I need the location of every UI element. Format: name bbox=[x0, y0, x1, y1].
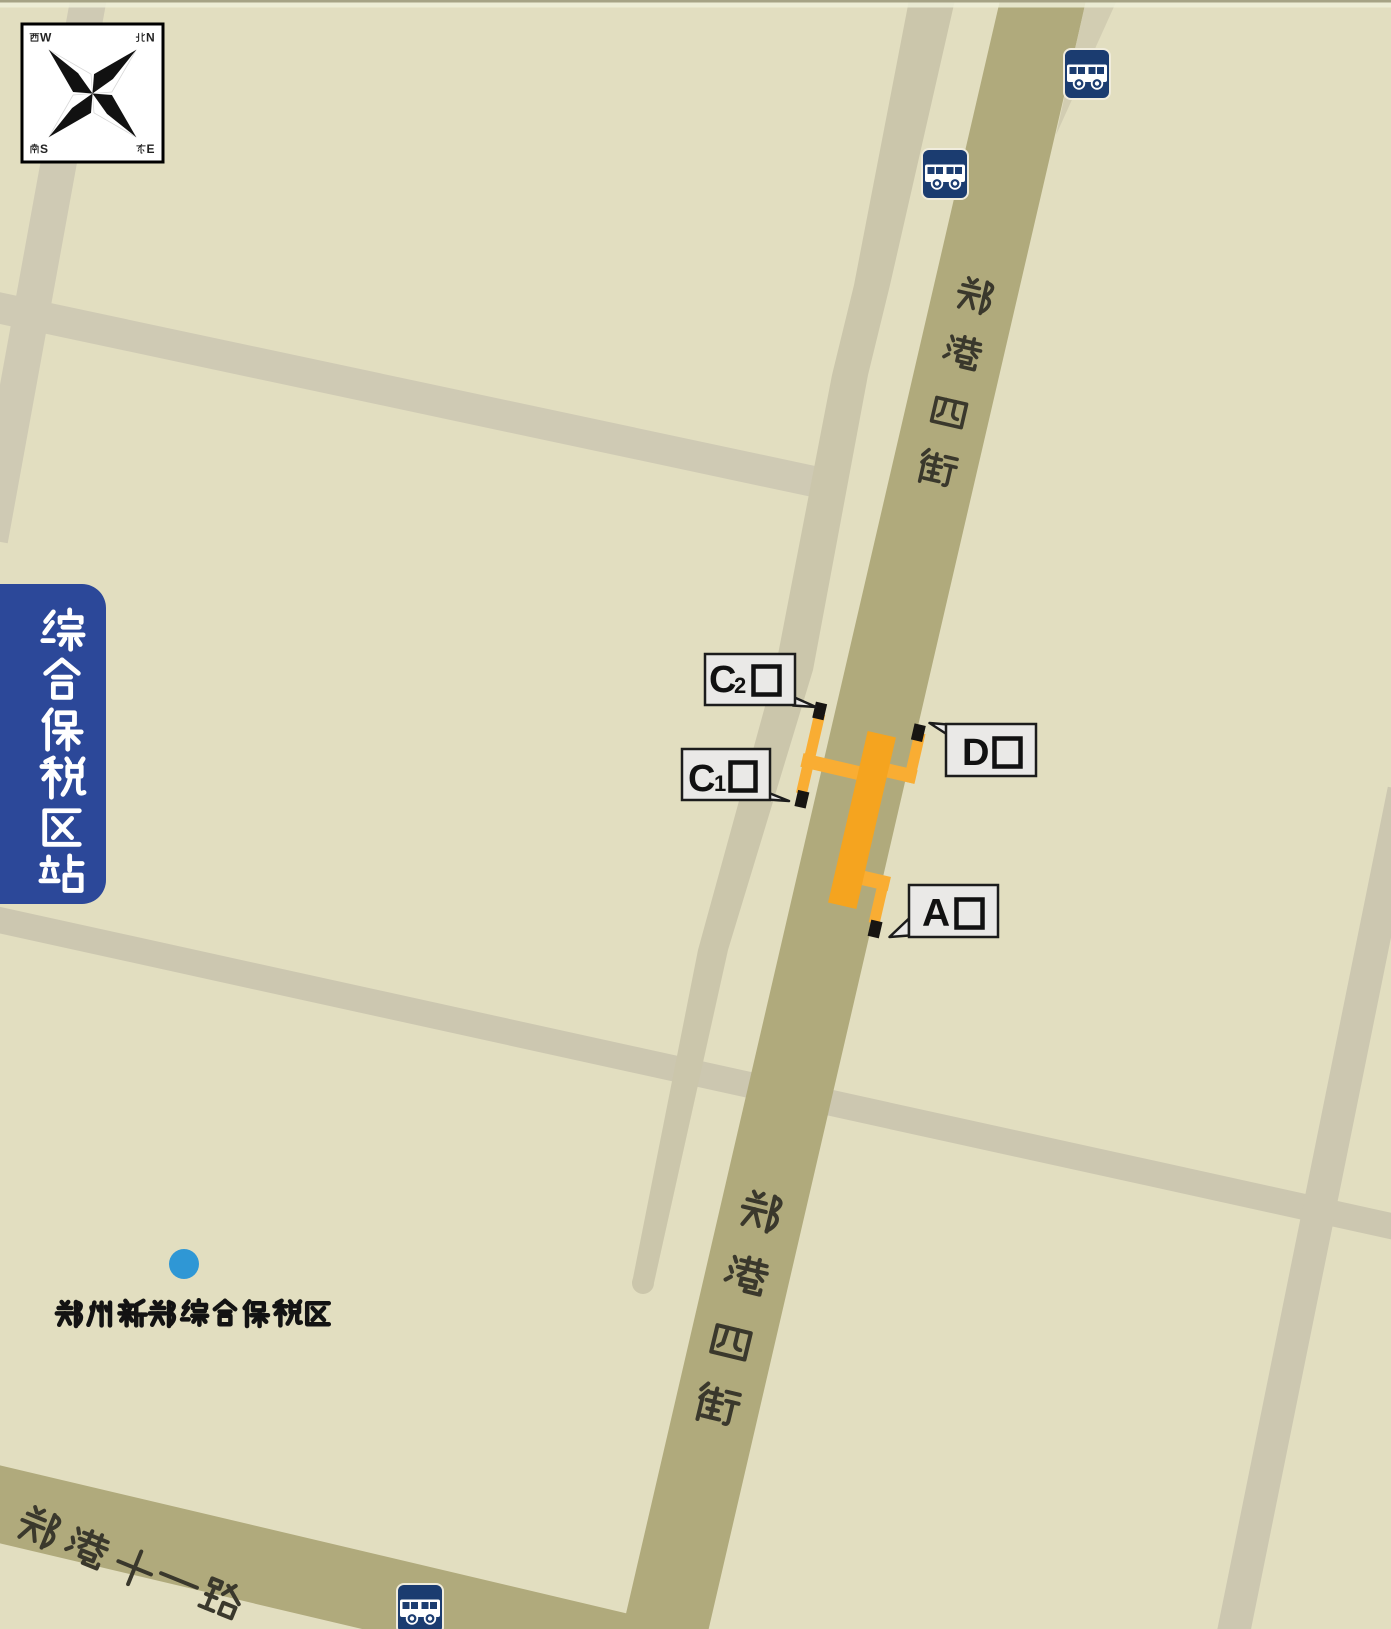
svg-text:N: N bbox=[146, 31, 155, 45]
svg-text:S: S bbox=[40, 142, 48, 156]
svg-text:A: A bbox=[922, 892, 950, 935]
svg-text:D: D bbox=[962, 732, 989, 774]
svg-text:C: C bbox=[688, 758, 715, 800]
svg-text:E: E bbox=[147, 142, 155, 156]
svg-text:1: 1 bbox=[714, 771, 726, 796]
svg-text:2: 2 bbox=[734, 673, 746, 698]
svg-text:W: W bbox=[40, 31, 52, 45]
svg-text:C: C bbox=[709, 659, 736, 701]
